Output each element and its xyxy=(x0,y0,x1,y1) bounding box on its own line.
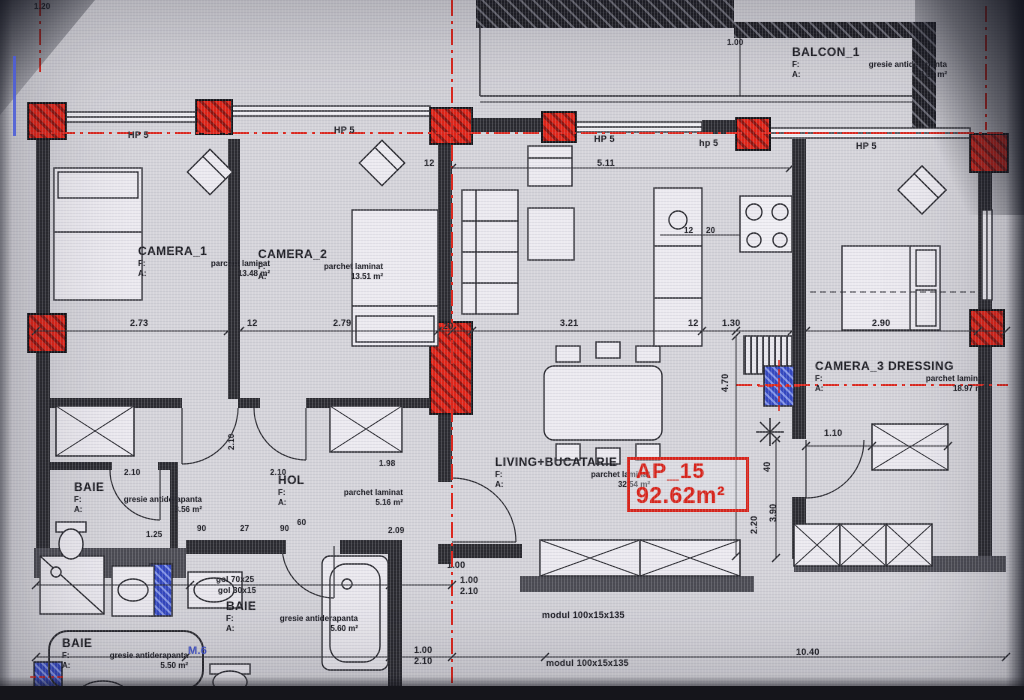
dim-60: 60 xyxy=(297,518,306,527)
dim-2-73: 2.73 xyxy=(130,318,148,328)
finish-prefix: F: xyxy=(278,488,286,497)
finish-value: parchet laminat xyxy=(344,488,403,497)
room-label-camera2: CAMERA_2 F:parchet laminat A:13.51 m² xyxy=(258,247,383,281)
area-prefix: A: xyxy=(278,498,286,507)
dim-1-00-c: 1.00 xyxy=(414,645,432,655)
dim-90-a: 90 xyxy=(197,524,206,533)
area-value: 18.97 m² xyxy=(953,384,985,393)
room-name: CAMERA_1 xyxy=(138,244,270,258)
window-label-hp5-5: HP 5 xyxy=(856,141,877,151)
window-label-hp5-4: hp 5 xyxy=(699,138,718,148)
room-label-hol: HOL F:parchet laminat A:5.16 m² xyxy=(278,473,403,507)
room-label-camera1: CAMERA_1 F:parchet laminat A:13.48 m² xyxy=(138,244,270,278)
area-prefix: A: xyxy=(792,70,800,79)
dim-1-20-topleft: 1.20 xyxy=(34,2,50,11)
area-value: 12.00 m² xyxy=(915,70,947,79)
area-prefix: A: xyxy=(62,661,70,670)
area-prefix: A: xyxy=(138,269,146,278)
finish-value: parchet laminat xyxy=(926,374,985,383)
finish-prefix: F: xyxy=(226,614,234,623)
dim-90-b: 90 xyxy=(280,524,289,533)
dim-12-c: 12 xyxy=(792,318,802,328)
dim-20-kitchen: 20 xyxy=(706,226,715,235)
note-modul-1: modul 100x15x135 xyxy=(542,610,625,620)
dim-4-70: 4.70 xyxy=(720,374,730,392)
area-value: 5.50 m² xyxy=(160,661,188,670)
window-label-hp5-2: HP 5 xyxy=(334,125,355,135)
finish-value: gresie antiderapanta xyxy=(124,495,202,504)
area-value: 13.51 m² xyxy=(351,272,383,281)
dim-1-10: 1.10 xyxy=(824,428,842,438)
room-label-baie1: BAIE F:gresie antiderapanta A:3.56 m² xyxy=(74,480,202,514)
area-value: 5.60 m² xyxy=(330,624,358,633)
room-label-camera3: CAMERA_3 DRESSING F:parchet laminat A:18… xyxy=(815,359,985,393)
dim-2-90: 2.90 xyxy=(872,318,890,328)
dim-2-10-door1: 2.10 xyxy=(124,468,140,477)
apartment-id-box: AP_15 92.62m² xyxy=(627,457,749,512)
finish-prefix: F: xyxy=(62,651,70,660)
star-symbol xyxy=(756,418,784,446)
room-name: HOL xyxy=(278,473,403,487)
room-label-balcon1: BALCON_1 F:gresie antiderapanta A:12.00 … xyxy=(792,45,947,79)
note-gol-30x15: gol 30x15 xyxy=(218,586,256,595)
area-prefix: A: xyxy=(495,480,503,489)
room-name: BALCON_1 xyxy=(792,45,947,59)
dim-2-10-b: 2.10 xyxy=(414,656,432,666)
note-modul-2: modul 100x15x135 xyxy=(546,658,629,668)
door-arcs xyxy=(110,408,864,598)
dim-2-20: 2.20 xyxy=(749,516,759,534)
area-value: 5.16 m² xyxy=(375,498,403,507)
dim-2-10-a: 2.10 xyxy=(460,586,478,596)
area-prefix: A: xyxy=(258,272,266,281)
dim-40: 40 xyxy=(762,462,772,472)
dim-3-90: 3.90 xyxy=(768,504,778,522)
room-label-baie2: BAIE F:gresie antiderapanta A:5.60 m² xyxy=(226,599,358,633)
area-prefix: A: xyxy=(74,505,82,514)
room-label-baie3: BAIE F:gresie antiderapanta A:5.50 m² xyxy=(62,636,188,670)
axis-lines xyxy=(30,0,1008,692)
floor-plan-screenshot: HP 5 HP 5 HP 5 hp 5 HP 5 CAMERA_1 F:parc… xyxy=(0,0,1024,700)
finish-value: gresie antiderapanta xyxy=(280,614,358,623)
dim-12-top: 12 xyxy=(424,158,434,168)
apartment-id: AP_15 xyxy=(636,461,740,483)
dim-1-98: 1.98 xyxy=(379,459,395,468)
window-label-hp5-3: HP 5 xyxy=(594,134,615,144)
finish-value: gresie antiderapanta xyxy=(110,651,188,660)
dim-1-00-b: 1.00 xyxy=(460,575,478,585)
dim-20: 20 xyxy=(443,321,453,331)
dim-2-10-vertical: 2.10 xyxy=(227,434,236,450)
finish-prefix: F: xyxy=(815,374,823,383)
furniture xyxy=(40,140,946,700)
note-gol-70x25: gol 70x25 xyxy=(216,575,254,584)
window-label-hp5-1: HP 5 xyxy=(128,130,149,140)
dim-3-21: 3.21 xyxy=(560,318,578,328)
dim-12-b: 12 xyxy=(688,318,698,328)
finish-value: parchet laminat xyxy=(324,262,383,271)
finish-value: gresie antiderapanta xyxy=(869,60,947,69)
room-name: BAIE xyxy=(74,480,202,494)
finish-prefix: F: xyxy=(74,495,82,504)
room-name: CAMERA_2 xyxy=(258,247,383,261)
dim-1-30: 1.30 xyxy=(722,318,740,328)
dim-1-25: 1.25 xyxy=(146,530,162,539)
dim-1-00-balcony: 1.00 xyxy=(727,38,743,47)
floor-plan-drawing xyxy=(0,0,1024,700)
dim-27: 27 xyxy=(240,524,249,533)
area-prefix: A: xyxy=(815,384,823,393)
room-name: CAMERA_3 DRESSING xyxy=(815,359,985,373)
dim-2-09: 2.09 xyxy=(388,526,404,535)
area-value: 3.56 m² xyxy=(174,505,202,514)
finish-prefix: F: xyxy=(138,259,146,268)
dim-12-kitchen: 12 xyxy=(684,226,693,235)
finish-prefix: F: xyxy=(495,470,503,479)
room-name: BAIE xyxy=(62,636,188,650)
dim-2-79: 2.79 xyxy=(333,318,351,328)
dim-10-40: 10.40 xyxy=(796,647,820,657)
apartment-area: 92.62m² xyxy=(636,483,740,507)
dim-12-a: 12 xyxy=(247,318,257,328)
dim-2-10-door2: 2.10 xyxy=(270,468,286,477)
dim-5-11: 5.11 xyxy=(597,158,615,168)
note-m6: M.6 xyxy=(188,645,207,657)
finish-prefix: F: xyxy=(258,262,266,271)
dim-1-00-a: 1.00 xyxy=(447,560,465,570)
finish-prefix: F: xyxy=(792,60,800,69)
area-prefix: A: xyxy=(226,624,234,633)
room-name: BAIE xyxy=(226,599,358,613)
